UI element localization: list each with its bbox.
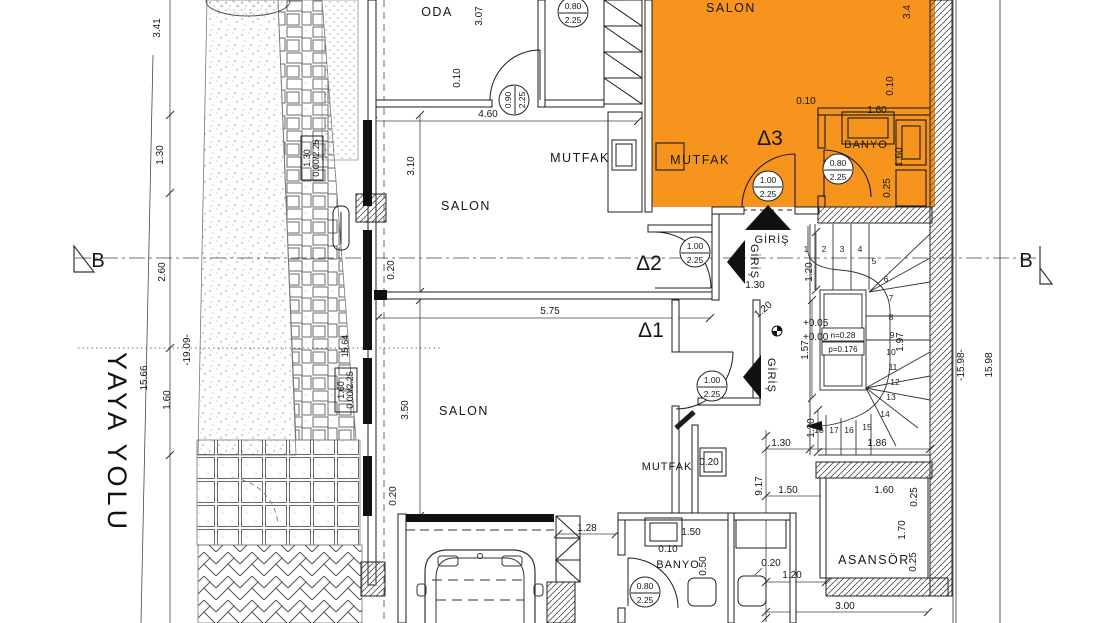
room-label-salon-upper: SALON [441,199,491,213]
dim-130-left: 1.30 [155,145,166,165]
svg-text:18: 18 [814,425,824,435]
door-tag-banyo-low: 0.802.25 [630,577,660,607]
stair-p: p=0.176 [828,345,858,354]
dim-341: 3.41 [152,18,163,38]
dim-120-stair: 1.20 [804,262,815,282]
windows-left-wall [363,120,554,522]
unit-label-d3: Δ3 [757,127,783,150]
door-tag-d1: 1.002.25 [697,371,727,401]
elevator-bottom-wall [826,578,948,596]
dim-010-banyo: 0.10 [796,96,816,107]
dim-025-elev-bot: 0.25 [908,552,919,572]
door-tag-d2: 1.002.25 [680,237,710,267]
banyo-low-wc [688,578,716,606]
grid-paving [197,440,360,545]
dim-186: 1.86 [867,438,887,449]
svg-text:1.00: 1.00 [687,241,704,251]
dim-020-mutfak-d1: 0.20 [699,457,719,468]
svg-text:2: 2 [822,244,827,254]
elevator-top-wall [816,462,932,478]
dim-010-banyo-v: 0.10 [885,76,896,96]
dim-34-top: 3.4 [902,5,913,19]
svg-text:4: 4 [858,244,863,254]
room-label-salon-lower: SALON [439,404,489,418]
dim-460: 4.60 [478,109,498,120]
room-label-asansor: ASANSÖR [838,553,910,567]
site-landscape [197,0,362,623]
floor-plan-drawing: 0.802.25 0.902.25 1.002.25 1.002.25 0.80… [0,0,1110,623]
room-label-oda: ODA [421,5,453,19]
svg-text:1.00: 1.00 [760,175,777,185]
banyo-low-sink [645,518,682,546]
dim-160-left: 1.60 [162,390,173,410]
giris-arrow-d1 [743,355,761,399]
herringbone-driveway [198,545,362,623]
giris-arrow-d2 [727,240,745,284]
door-tag-oda: 0.902.25 [499,85,529,115]
svg-text:2.25: 2.25 [830,172,847,182]
window-tag-160-h: 0.00/2.25 [345,371,355,409]
garage-left-wall [398,514,406,623]
window-tag-130-h: 0.00/2.25 [311,139,321,177]
column-2 [361,562,385,596]
dim-307: 3.07 [474,6,485,26]
section-label-left: B [91,250,104,272]
dim-1598: 15.98 [984,352,995,377]
dim-157: 1.57 [800,340,811,360]
wc-room-fixture-2 [738,576,766,606]
exterior-wall-right [930,0,952,596]
dim-020-low: 0.20 [388,486,399,506]
dim-350: 3.50 [400,400,411,420]
svg-text:5: 5 [872,256,877,266]
dim-050-banyo-low: 0.50 [698,556,709,576]
svg-text:0.80: 0.80 [565,1,582,11]
room-label-mutfak-left: MUTFAK [550,151,610,165]
dim-160-banyo: 1.60 [867,105,887,116]
level-marker [772,326,782,336]
svg-text:11: 11 [889,362,898,372]
dim-128: 1.28 [577,523,597,534]
svg-text:8: 8 [889,312,894,322]
street-label: YAYA YOLU [102,352,132,533]
svg-text:2.25: 2.25 [517,91,527,108]
svg-text:6: 6 [884,274,889,284]
dim-010-oda: 0.10 [452,68,463,88]
section-label-right: B [1019,250,1032,272]
unit-label-d1: Δ1 [638,319,664,342]
ramp-hatch [547,582,575,623]
dim-020-elev: 0.20 [761,558,781,569]
svg-text:17: 17 [829,425,839,435]
svg-text:2.25: 2.25 [704,389,721,399]
svg-text:15: 15 [862,422,872,432]
section-flag-right [1040,246,1052,284]
svg-text:10: 10 [886,347,896,357]
svg-text:0.80: 0.80 [830,158,847,168]
dim-160-banyo-v: 1.60 [894,147,905,167]
giris-label-d2: GİRİŞ [748,244,761,279]
svg-text:2.25: 2.25 [637,595,654,605]
dim-1598-neg: -15.98- [956,349,967,381]
gravel-strip [322,0,358,160]
wall-d3-left [645,0,652,212]
left-lot-line [141,55,153,623]
floor-plan-canvas: 0.802.25 0.902.25 1.002.25 1.002.25 0.80… [0,0,1110,623]
svg-text:9: 9 [890,330,895,340]
dim-575: 5.75 [540,306,560,317]
svg-text:2.25: 2.25 [565,15,582,25]
svg-text:12: 12 [890,377,900,387]
room-label-banyo-low: BANYO [656,559,700,571]
room-label-banyo-d3: BANYO [844,139,888,151]
dim-130-vest: 1.30 [745,280,765,291]
dim-1564: 15.64 [340,335,350,358]
dim-1566: 15.66 [139,365,150,390]
car-symbol [425,550,535,623]
dim-130-bot: 1.30 [771,438,791,449]
wc-room-fixture-1 [736,520,786,548]
room-label-mutfak-d3: MUTFAK [670,153,730,167]
garage-lintel [406,514,554,522]
unit-label-d2: Δ2 [636,252,662,275]
dim-020-up: 0.20 [386,260,397,280]
dim-1909: -19.09- [182,334,193,366]
dim-310: 3.10 [406,156,417,176]
giris-label-d1: GİRİŞ [765,358,778,393]
svg-text:0.80: 0.80 [637,581,654,591]
dim-025-banyo: 0.25 [882,178,893,198]
room-label-salon-d3: SALON [706,1,756,15]
dim-260: 2.60 [157,262,168,282]
garage [406,530,554,623]
room-label-mutfak-d1: MUTFAK [642,461,693,473]
dim-025-elev-top: 0.25 [909,487,920,507]
level-upper: +0.05 [803,318,829,329]
dim-917: 9.17 [754,476,765,496]
stair-n: n=0.28 [831,331,856,340]
svg-text:1.00: 1.00 [704,375,721,385]
dim-010-banyo-low: 0.10 [658,544,678,555]
unit-d3-fill [650,0,935,207]
dim-150-banyo-low: 1.50 [681,527,701,538]
dim-160-elev: 1.60 [874,485,894,496]
svg-text:7: 7 [889,293,894,303]
dim-300: 3.00 [835,601,855,612]
svg-text:2.25: 2.25 [760,189,777,199]
dim-150: 1.50 [778,485,798,496]
stair-top-wall [818,207,932,223]
svg-text:3: 3 [840,244,845,254]
svg-text:0.90: 0.90 [503,91,513,108]
door-tag-banyo-d3: 0.802.25 [823,154,853,184]
svg-text:1: 1 [804,244,809,254]
giris-arrow-up [745,205,791,230]
leader-020-bottom [755,568,762,575]
dim-120-bot: 1.20 [782,570,802,581]
dim-197: 1.97 [895,332,906,352]
svg-text:14: 14 [880,409,890,419]
svg-text:16: 16 [844,425,854,435]
dim-170: 1.70 [897,520,908,540]
salon-divider-wall [376,292,712,299]
door-tag-oda-top: 0.802.25 [558,0,588,27]
door-tag-d3: 1.002.25 [753,171,783,201]
svg-text:2.25: 2.25 [687,255,704,265]
svg-text:13: 13 [886,392,896,402]
